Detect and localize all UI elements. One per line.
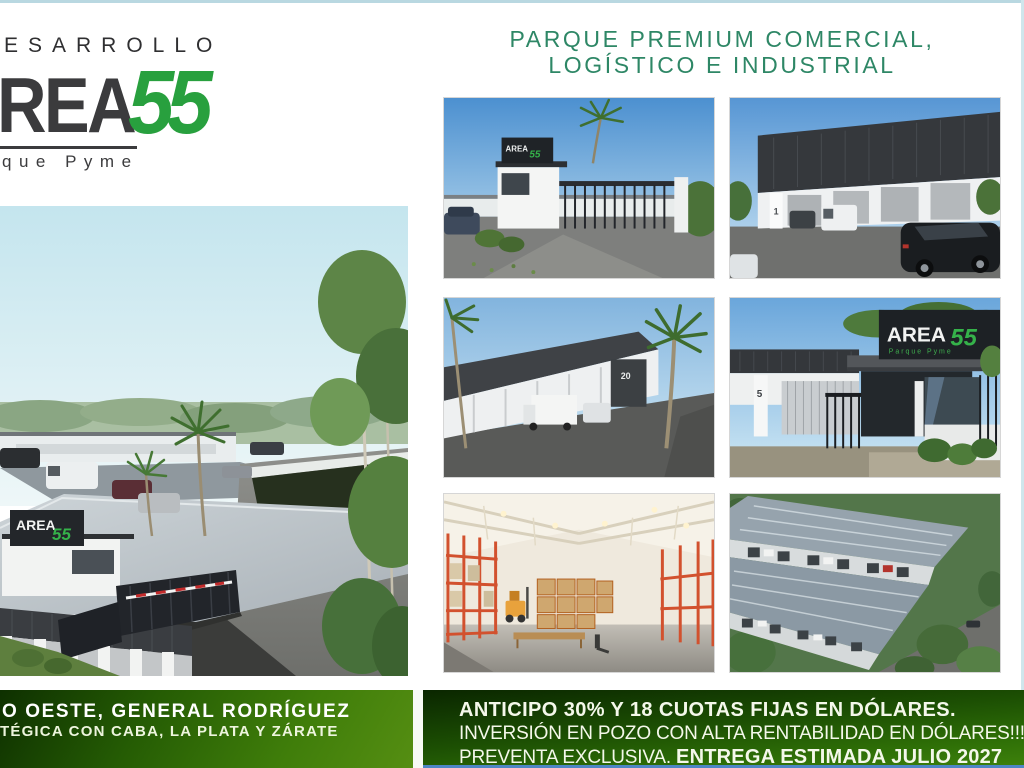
logo-55-text: 55: [128, 58, 205, 148]
t1-sign-area: AREA: [506, 144, 529, 153]
page-title-line2: LOGÍSTICO E INDUSTRIAL: [424, 52, 1020, 78]
logo-area-text: REA: [0, 66, 134, 144]
gallery-thumb-warehouse-palms: 20: [443, 297, 715, 478]
gallery-thumb-facade-row: 1: [729, 97, 1001, 279]
t1-sign-55: 55: [529, 149, 541, 160]
footer-offer-line1: ANTICIPO 30% Y 18 CUOTAS FIJAS EN DÓLARE…: [459, 699, 956, 722]
t4-sign-area: AREA: [887, 324, 946, 347]
t4-sign-55: 55: [950, 325, 977, 352]
main-sign-area-text: AREA: [16, 517, 56, 533]
page-title: PARQUE PREMIUM COMERCIAL, LOGÍSTICO E IN…: [424, 26, 1020, 78]
page-title-line1: PARQUE PREMIUM COMERCIAL,: [424, 26, 1020, 52]
t2-unit-number: 1: [774, 207, 779, 217]
t4-unit-number: 5: [757, 389, 763, 400]
top-frame-line: [0, 0, 1024, 3]
gallery-thumb-gatehouse-sign: 5 AREA 55 Parque Pyme: [729, 297, 1001, 478]
footer-offer-band: ANTICIPO 30% Y 18 CUOTAS FIJAS EN DÓLARE…: [423, 690, 1024, 768]
main-render-scene: 5 AREA 55: [0, 206, 408, 676]
footer-location-band: O OESTE, GENERAL RODRÍGUEZ TÉGICA CON CA…: [0, 690, 413, 768]
gallery-thumb-entrance-gate: AREA 55: [443, 97, 715, 279]
gallery-thumb-interior: [443, 493, 715, 673]
t4-sign-sub: Parque Pyme: [889, 348, 953, 355]
t3-unit-number: 20: [621, 371, 631, 381]
footer-location-line1: O OESTE, GENERAL RODRÍGUEZ: [2, 701, 350, 723]
flyer-page: ESARROLLO REA 55 que Pyme PARQUE PREMIUM…: [0, 0, 1024, 768]
logo-subtitle: que Pyme: [2, 152, 139, 172]
main-render-image: 5 AREA 55: [0, 206, 408, 676]
footer-band-divider: [413, 690, 423, 768]
main-sign-55-text: 55: [52, 525, 71, 544]
footer-location-line2: TÉGICA CON CABA, LA PLATA Y ZÁRATE: [0, 723, 339, 740]
gallery-thumb-aerial: [729, 493, 1001, 673]
footer-offer-line2: INVERSIÓN EN POZO CON ALTA RENTABILIDAD …: [459, 723, 1024, 745]
logo-underline: [0, 146, 137, 149]
